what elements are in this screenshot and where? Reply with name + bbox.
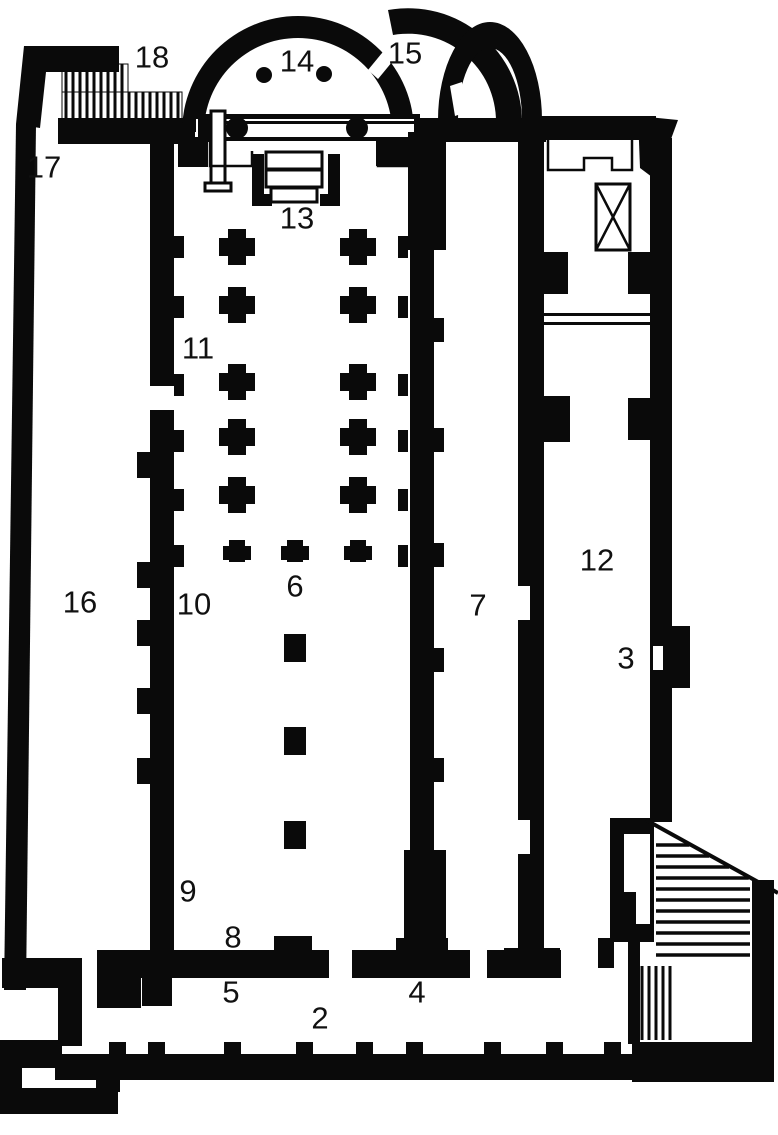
room-label-2: 2 bbox=[311, 1001, 328, 1036]
room-label-4: 4 bbox=[408, 975, 425, 1010]
confessio-channel bbox=[211, 111, 225, 185]
floor-plan-page: 23456789101112131415161718 bbox=[0, 0, 778, 1135]
room-label-11: 11 bbox=[182, 331, 214, 366]
outer-walls bbox=[4, 46, 690, 990]
floor-plan-diagram: 23456789101112131415161718 bbox=[0, 0, 778, 1135]
stair-symbol-box bbox=[596, 184, 630, 250]
room-label-3: 3 bbox=[617, 641, 634, 676]
apse-column-dot bbox=[256, 67, 272, 83]
room-label-10: 10 bbox=[177, 587, 211, 622]
room-label-5: 5 bbox=[222, 975, 239, 1010]
room-label-9: 9 bbox=[179, 874, 196, 909]
room-label-18: 18 bbox=[135, 40, 169, 75]
room-label-7: 7 bbox=[469, 588, 486, 623]
room-label-8: 8 bbox=[224, 920, 241, 955]
room-label-17: 17 bbox=[27, 150, 61, 185]
room12-features bbox=[544, 140, 654, 442]
room-label-6: 6 bbox=[286, 569, 303, 604]
apse-column-dot bbox=[316, 66, 332, 82]
nave-piers bbox=[137, 229, 444, 849]
room-label-15: 15 bbox=[388, 36, 422, 71]
portico-wall bbox=[55, 1042, 707, 1080]
screen-column-dot bbox=[226, 117, 248, 139]
room-label-13: 13 bbox=[280, 201, 314, 236]
room-label-16: 16 bbox=[63, 585, 97, 620]
room-label-12: 12 bbox=[580, 543, 614, 578]
room-label-14: 14 bbox=[280, 44, 314, 79]
screen-column-dot bbox=[346, 117, 368, 139]
southeast-stairs bbox=[610, 818, 778, 1082]
high-altar bbox=[252, 152, 340, 206]
